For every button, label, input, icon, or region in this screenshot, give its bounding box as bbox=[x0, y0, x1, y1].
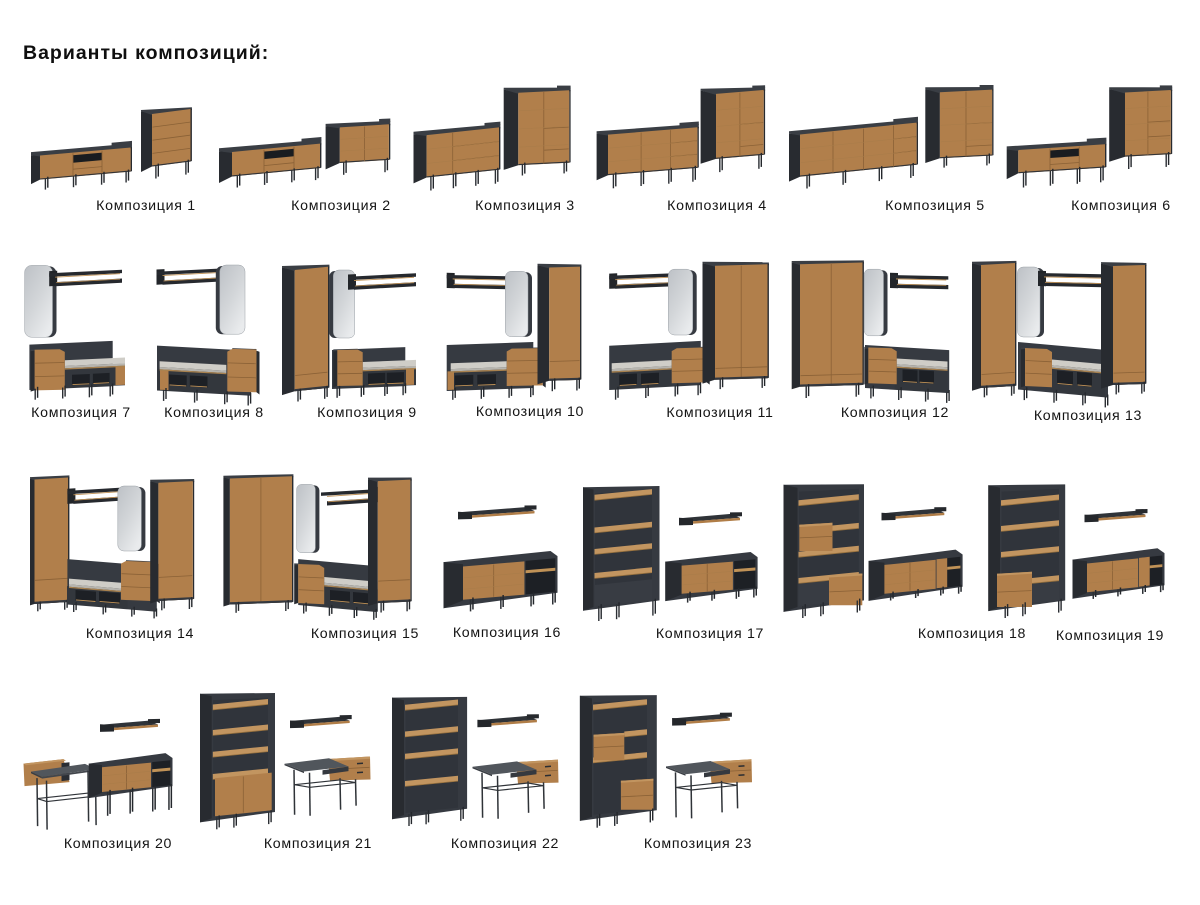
svg-text:Композиция 8: Композиция 8 bbox=[164, 405, 264, 421]
svg-text:Композиция 23: Композиция 23 bbox=[644, 836, 752, 852]
svg-text:Композиция 21: Композиция 21 bbox=[264, 836, 372, 852]
svg-text:Композиция 19: Композиция 19 bbox=[1056, 628, 1164, 644]
svg-text:Композиция 22: Композиция 22 bbox=[451, 836, 559, 852]
svg-text:Композиция 20: Композиция 20 bbox=[64, 836, 172, 852]
svg-text:Композиция 17: Композиция 17 bbox=[656, 626, 764, 642]
svg-text:Композиция 15: Композиция 15 bbox=[311, 626, 419, 642]
svg-text:Композиция 14: Композиция 14 bbox=[86, 626, 194, 642]
svg-text:Композиция 16: Композиция 16 bbox=[453, 625, 561, 641]
svg-text:Композиция 1: Композиция 1 bbox=[96, 198, 196, 214]
svg-text:Композиция 18: Композиция 18 bbox=[918, 626, 1026, 642]
svg-text:Композиция 3: Композиция 3 bbox=[475, 198, 575, 214]
svg-text:Композиция 7: Композиция 7 bbox=[31, 405, 131, 421]
svg-text:Композиция 10: Композиция 10 bbox=[476, 404, 584, 420]
svg-text:Композиция 9: Композиция 9 bbox=[317, 405, 417, 421]
svg-text:Композиция 12: Композиция 12 bbox=[841, 405, 949, 421]
svg-text:Композиция 13: Композиция 13 bbox=[1034, 408, 1142, 424]
svg-text:Композиция 11: Композиция 11 bbox=[666, 405, 773, 421]
svg-text:Композиция 4: Композиция 4 bbox=[667, 198, 767, 214]
svg-text:Варианты композиций:: Варианты композиций: bbox=[23, 42, 269, 64]
svg-text:Композиция 2: Композиция 2 bbox=[291, 198, 391, 214]
svg-text:Композиция 5: Композиция 5 bbox=[885, 198, 985, 214]
svg-text:Композиция 6: Композиция 6 bbox=[1071, 198, 1171, 214]
